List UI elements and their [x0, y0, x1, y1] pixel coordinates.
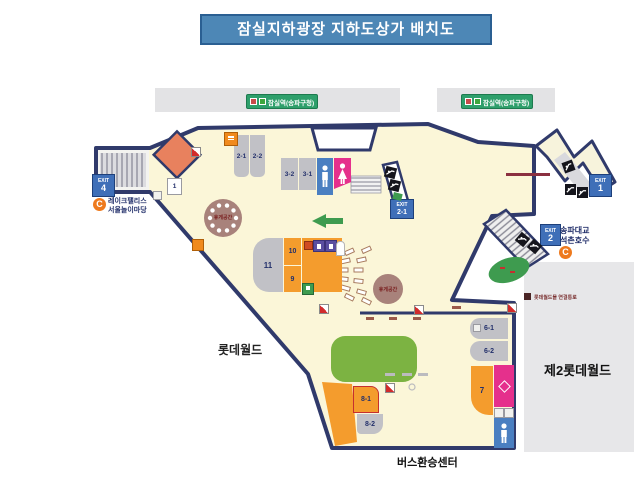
lotte-world2-block [524, 262, 634, 452]
station-label-left: 잠실역(송파구청) [246, 94, 318, 109]
facility-box-1 [494, 408, 504, 418]
atm-icon [313, 240, 325, 252]
stairs-small-icon [192, 239, 204, 251]
male-icon [494, 418, 514, 448]
vending-icon [304, 241, 313, 250]
block-8-1: 8-1 [353, 386, 379, 413]
hydrant-icon [191, 147, 201, 157]
station-notch [312, 128, 376, 150]
exit-2-1-badge: EXIT2-1 [390, 199, 414, 219]
restroom-male-top [317, 158, 333, 195]
lotte-world-label: 롯데월드 [218, 341, 262, 358]
block-11: 11 [253, 238, 283, 292]
map-canvas: 잠실지하광장 지하도상가 배치도 잠실역(송파구청) 잠실역(송파구청) EXI… [0, 0, 640, 480]
diamond-icon [498, 380, 511, 393]
bus-center-label: 버스환승센터 [397, 454, 458, 470]
block-6-2: 6-2 [470, 341, 508, 361]
exit-4-badge: EXIT4 [92, 174, 115, 197]
passage-label: 롯데월드몰 연결통로 [534, 294, 577, 301]
hydrant-icon [414, 305, 424, 315]
block-3-1: 3-1 [299, 158, 316, 190]
block-8-2: 8-2 [357, 414, 383, 434]
garden-mark1 [500, 267, 505, 269]
stairs-center [351, 176, 381, 193]
escalator-icon [577, 187, 588, 198]
escalator-icon [565, 184, 576, 195]
line-icon [250, 98, 257, 105]
exit-2-badge: EXIT2 [540, 224, 561, 246]
garden-mark2 [510, 271, 515, 273]
exit-1-badge: EXIT1 [589, 174, 612, 197]
page-title: 잠실지하광장 지하도상가 배치도 [200, 14, 492, 45]
c-mark-right: C [559, 246, 572, 259]
line-icon [259, 98, 266, 105]
passage-marker [524, 293, 531, 300]
block-3-2: 3-2 [281, 158, 298, 190]
red-line [506, 173, 550, 176]
line-icon [474, 98, 481, 105]
hydrant-icon [507, 303, 517, 313]
lotte-world2-label: 제2롯데월드 [544, 360, 611, 379]
station-name: 잠실역(송파구청) [483, 97, 529, 107]
songpa-label: 송파대교 석촌호수 [560, 226, 589, 246]
small-box [153, 191, 162, 200]
block-9: 9 [284, 266, 301, 292]
restroom-female-bottom [494, 365, 514, 407]
block-7: 7 [471, 366, 493, 415]
c-mark-left: C [93, 198, 106, 211]
rest-area-left-label: 휴게공간 [206, 214, 240, 221]
male-icon [317, 158, 333, 195]
facility-box-2 [504, 408, 514, 418]
hydrant-icon [385, 383, 395, 393]
block-2-2: 2-2 [250, 135, 265, 177]
lake-palace-label: 레이크팰리스 서울놀이마당 [108, 197, 147, 215]
restroom-male-bottom [494, 418, 514, 448]
block-1: 1 [167, 178, 182, 195]
block-10: 10 [284, 238, 301, 265]
stairs-small-icon [224, 132, 238, 146]
phone-icon [302, 283, 314, 295]
hydrant-icon [319, 304, 329, 314]
station-name: 잠실역(송파구청) [268, 97, 314, 107]
station-label-right: 잠실역(송파구청) [461, 94, 533, 109]
info-box-icon [473, 324, 481, 332]
statue-icon [336, 241, 345, 256]
rest-area-right-label: 휴게공간 [372, 286, 404, 293]
line-icon [465, 98, 472, 105]
